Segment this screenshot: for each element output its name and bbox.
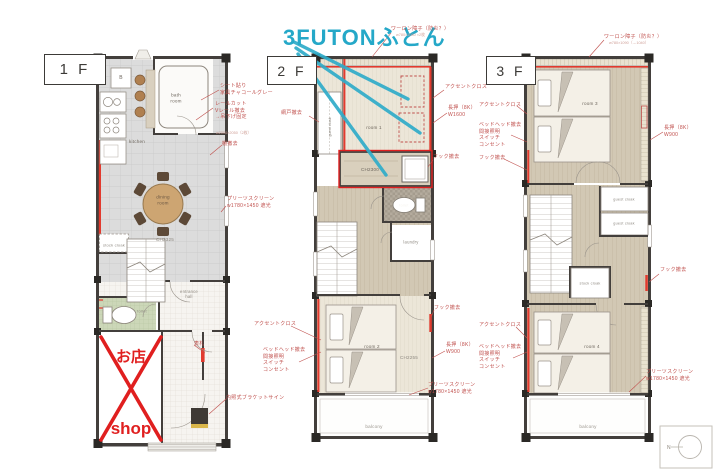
room-label-bathroom: bath room xyxy=(170,92,181,103)
room-label-room1: room 1 xyxy=(366,125,382,131)
note-hook-removal-3f-top: フック撤去 xyxy=(479,155,506,162)
note-bedhead-3f-bottom: ベッドヘッド撤去 間接照明 スイッチ コンセント xyxy=(479,344,521,370)
note-nageshi-2f-bottom: 長押（8K） W900 xyxy=(446,342,474,355)
note-nameplate: 表札 xyxy=(194,341,205,348)
ceiling-height-1f: CH2325 xyxy=(156,237,174,243)
room-label-guest-cloak-3f-1: guest cloak xyxy=(613,198,634,203)
floor-plan-2f xyxy=(312,54,438,443)
note-rail-cut: レールカット Vレール撤去 →吊下げ固定 xyxy=(215,101,247,121)
room-label-room3: room 3 xyxy=(582,101,598,107)
room-label-entrance-hall: entrance hall xyxy=(180,289,198,300)
note-accent-cloth-2f-bottom: アクセントクロス xyxy=(254,321,296,328)
room-label-balcony-3f: balcony xyxy=(579,424,596,430)
shop-label-japanese: お店 xyxy=(116,346,146,367)
note-bedhead-2f: ベッドヘッド撤去 間接照明 スイッチ コンセント xyxy=(263,347,305,373)
note-nageshi-3f-top: 長押（8K） W900 xyxy=(664,125,692,138)
note-pleated-screen-1f: プリーツスクリーン w1780×1450 遮光 xyxy=(227,196,274,209)
room-label-room2: room 2 xyxy=(364,344,380,350)
room-label-balcony-2f: balcony xyxy=(365,424,382,430)
shop-label-english: shop xyxy=(111,419,152,439)
room-label-guest-cloak-2f: guest cloak xyxy=(328,117,332,136)
room-label-stock-cloak-1f: stock cloak xyxy=(103,243,125,248)
note-accent-cloth-3f-bottom: アクセントクロス xyxy=(479,322,521,329)
compass-label: N xyxy=(667,445,671,451)
room-label-laundry: laundry xyxy=(403,239,418,244)
note-bedhead-3f-top: ベッドヘッド撤去 間接照明 スイッチ コンセント xyxy=(479,122,521,148)
room-label-room4: room 4 xyxy=(584,344,600,350)
note-sheet-finish: シート貼り 家具チャコールグレー xyxy=(220,83,273,96)
note-hook-removal-2f-top: フック撤去 xyxy=(433,154,460,161)
note-screen-door-removal: 網戸撤去 xyxy=(281,110,302,117)
room-label-kitchen: kitchen xyxy=(129,139,145,145)
note-shelf-removal: 棚撤去 xyxy=(222,141,238,148)
note-shoji-dim-3f: w780×1090（→1040） xyxy=(609,41,649,46)
floor-plan-3f xyxy=(522,54,654,443)
note-shoji-dim-2f: w780×1080 ×2枚 xyxy=(396,33,425,38)
room-label-toilet-1f: toilet xyxy=(137,309,147,314)
room-label-stock-cloak-3f: stock cloak xyxy=(580,282,601,287)
note-hook-removal-3f-right: フック撤去 xyxy=(660,267,687,274)
note-rail-dimension: w2000×2050（2枚） xyxy=(216,131,251,136)
room-label-dining: dining room xyxy=(156,194,169,205)
note-accent-cloth-3f-top: アクセントクロス xyxy=(479,102,521,109)
room-label-toilet-2f: toilet xyxy=(399,204,408,209)
note-accent-cloth-2f-top: アクセントクロス xyxy=(445,84,487,91)
floor-label-3f: 3 F xyxy=(486,56,536,85)
ceiling-height-2f: CH2255 xyxy=(400,355,418,361)
closet-ch-label-2f: CH2300 xyxy=(361,167,379,173)
note-hook-removal-2f-bottom: フック撤去 xyxy=(434,305,461,312)
floor-label-2f: 2 F xyxy=(267,56,317,85)
room-label-guest-cloak-3f-2: guest cloak xyxy=(613,222,634,227)
floor-label-1f: 1 F xyxy=(44,54,106,85)
note-bracket-sign: 内照式ブラケットサイン xyxy=(226,395,284,402)
note-shoji-3f: ワーロン障子（防炎？） xyxy=(604,34,662,41)
note-shoji-2f: ワーロン障子（防炎？） xyxy=(391,26,449,33)
floorplan-sheet: N 3FUTONふとん 1 F 2 F 3 F B bath room kitc… xyxy=(0,0,720,474)
note-nageshi-2f-top: 長押（8K） W1600 xyxy=(448,105,476,118)
room-label-b-unit: B xyxy=(119,75,123,81)
note-pleated-screen-3f: プリーツスクリーン w1780×1450 遮光 xyxy=(646,369,693,382)
note-pleated-screen-2f: プリーツスクリーン w1780×1450 遮光 xyxy=(428,382,475,395)
floorplan-graphics: N xyxy=(0,0,720,474)
north-compass: N xyxy=(660,426,712,468)
